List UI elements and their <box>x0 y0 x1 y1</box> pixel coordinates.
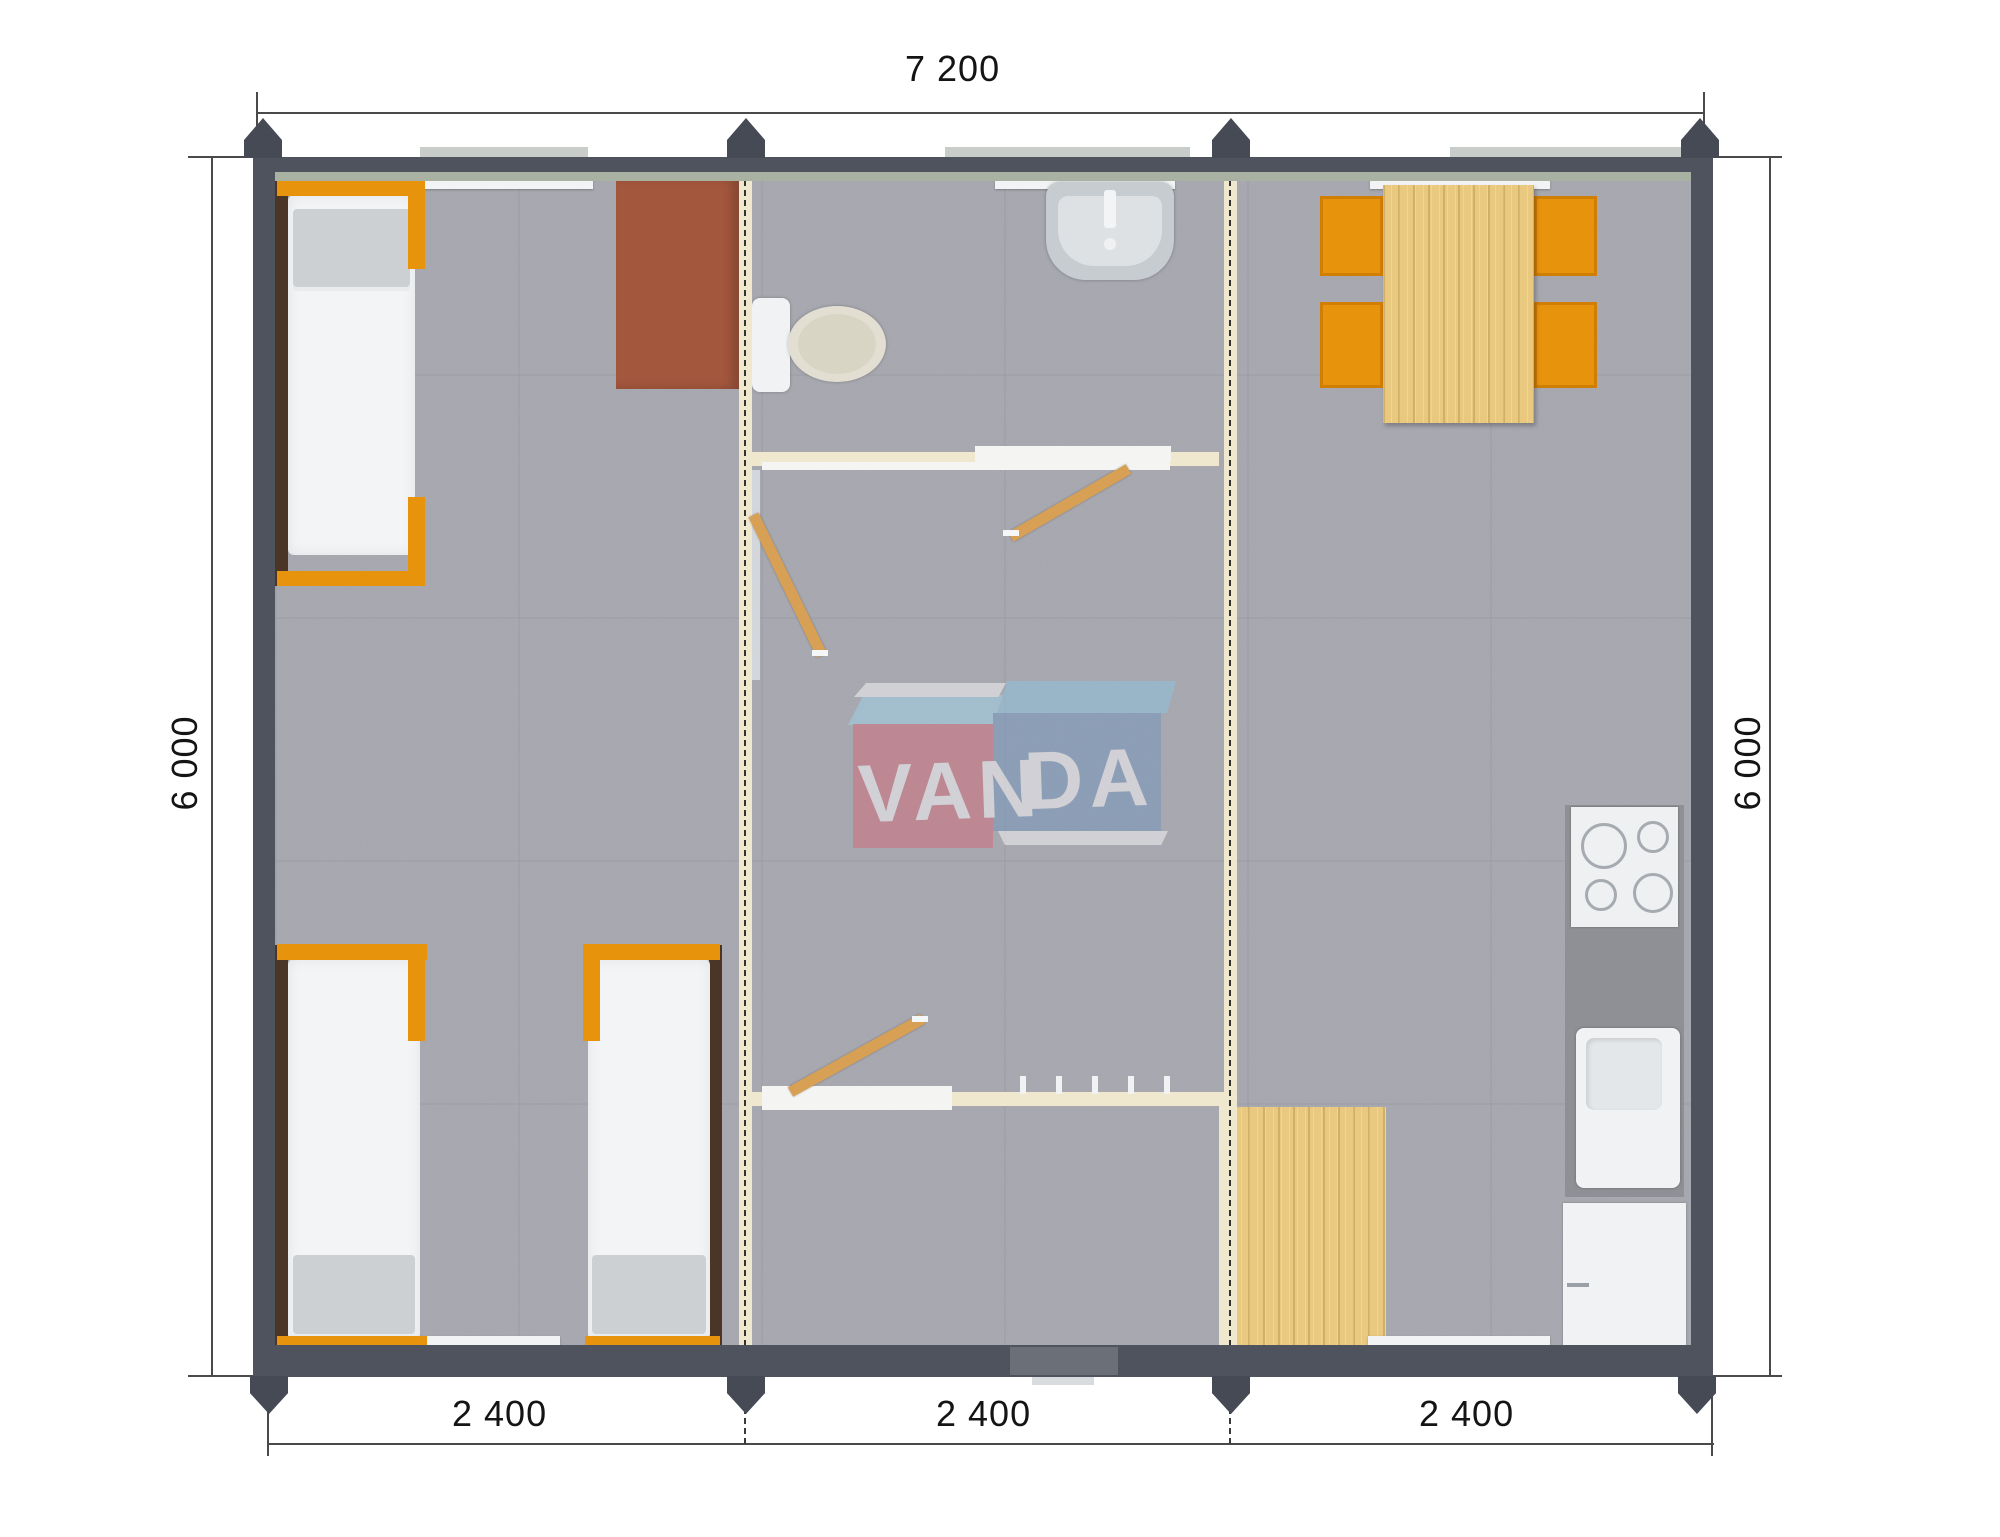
chair <box>1320 196 1383 276</box>
module-joint-1 <box>739 180 752 1346</box>
fridge <box>1563 1203 1686 1347</box>
bed-rail <box>585 944 720 960</box>
dim-label-left-height: 6 000 <box>164 708 206 818</box>
dim-line-left <box>211 157 213 1377</box>
bed-post <box>583 944 600 1041</box>
dim-line-right <box>1769 157 1771 1377</box>
coat-hook <box>1092 1076 1098 1094</box>
burner <box>1637 821 1669 853</box>
joint-door-panel <box>752 470 760 680</box>
dim-ext-right-top <box>1712 156 1782 158</box>
dim-line-bottom <box>268 1443 1714 1445</box>
bed-side-rail <box>275 181 288 586</box>
wall-left <box>253 157 275 1377</box>
bed-rail <box>277 571 425 586</box>
coat-hook <box>1056 1076 1062 1094</box>
logo-text-da: DA <box>1022 731 1156 829</box>
toilet-seat <box>798 314 876 374</box>
dim-line-top <box>257 112 1705 114</box>
roof-trim <box>420 147 588 157</box>
dim-label-right-height: 6 000 <box>1727 708 1769 818</box>
burner <box>1581 823 1627 869</box>
logo-box-red-top <box>848 695 1003 725</box>
corner-cap <box>727 118 765 158</box>
cooktop <box>1571 807 1678 927</box>
bed-rail <box>277 944 427 960</box>
corner-cap <box>1212 118 1250 158</box>
logo-box-blue-top <box>998 681 1176 713</box>
dim-ext-left-bottom <box>188 1375 258 1377</box>
module-joint-2 <box>1224 180 1237 1346</box>
chair <box>1320 302 1383 388</box>
wall-bottom <box>253 1345 1713 1377</box>
logo-box-red-lid <box>854 683 1006 697</box>
roof-trim <box>1450 147 1690 157</box>
bed-pillow <box>293 209 410 291</box>
bed-bottom-middle <box>583 943 722 1352</box>
wood-floor-mat <box>1233 1107 1386 1347</box>
bed-bottom-left <box>275 943 428 1352</box>
chair <box>1534 302 1597 388</box>
door-opening-upper <box>975 446 1171 462</box>
desk <box>616 178 740 389</box>
dim-ext-right-bottom <box>1712 1375 1782 1377</box>
bed-post <box>408 944 425 1041</box>
corner-cap <box>1681 118 1719 158</box>
bed-pillow <box>592 1255 706 1338</box>
bed-rail <box>277 181 425 196</box>
door-handle <box>812 650 828 656</box>
corner-cap <box>250 1376 288 1414</box>
dim-label-module-1: 2 400 <box>452 1393 547 1435</box>
corner-cap <box>727 1376 765 1414</box>
chair <box>1534 196 1597 276</box>
coat-hook <box>1164 1076 1170 1094</box>
door-handle <box>1003 530 1019 536</box>
dim-label-module-3: 2 400 <box>1419 1393 1514 1435</box>
burner <box>1585 879 1617 911</box>
roof-trim <box>945 147 1190 157</box>
door-handle <box>912 1016 928 1022</box>
fridge-handle <box>1567 1283 1589 1287</box>
bed-post <box>408 497 425 586</box>
faucet <box>1104 190 1116 228</box>
bed-post <box>408 181 425 269</box>
bed-pillow <box>293 1255 415 1338</box>
burner <box>1633 873 1673 913</box>
kitchen-sink <box>1576 1028 1680 1188</box>
entry-door-bottom <box>1010 1347 1118 1375</box>
coat-hook <box>1128 1076 1134 1094</box>
toilet-tank <box>752 298 790 392</box>
wall-top-lining <box>275 172 1691 181</box>
dim-label-module-2: 2 400 <box>936 1393 1031 1435</box>
bed-side-rail <box>275 945 288 1350</box>
wash-basin <box>1046 182 1174 280</box>
sink-basin <box>1586 1038 1662 1110</box>
dim-label-total-width: 7 200 <box>905 48 1000 90</box>
joint-dash-line <box>1229 180 1231 1346</box>
corner-cap <box>1212 1376 1250 1414</box>
door-threshold <box>1032 1377 1094 1385</box>
vanda-watermark: VAN DA <box>820 675 1190 870</box>
coat-hook <box>1020 1076 1026 1094</box>
joint-dash-line <box>744 180 746 1346</box>
corner-cap <box>244 118 282 158</box>
door-opening-upper-sill <box>762 462 1170 470</box>
bed-top-left <box>275 179 428 591</box>
bed-side-rail <box>709 945 722 1350</box>
floor-plan-canvas: 7 200 6 000 6 000 2 400 2 400 2 400 <box>0 0 2000 1537</box>
wall-right <box>1691 157 1713 1377</box>
dining-table <box>1383 185 1534 423</box>
logo-text-van: VAN <box>856 742 1044 842</box>
drain <box>1104 238 1116 250</box>
